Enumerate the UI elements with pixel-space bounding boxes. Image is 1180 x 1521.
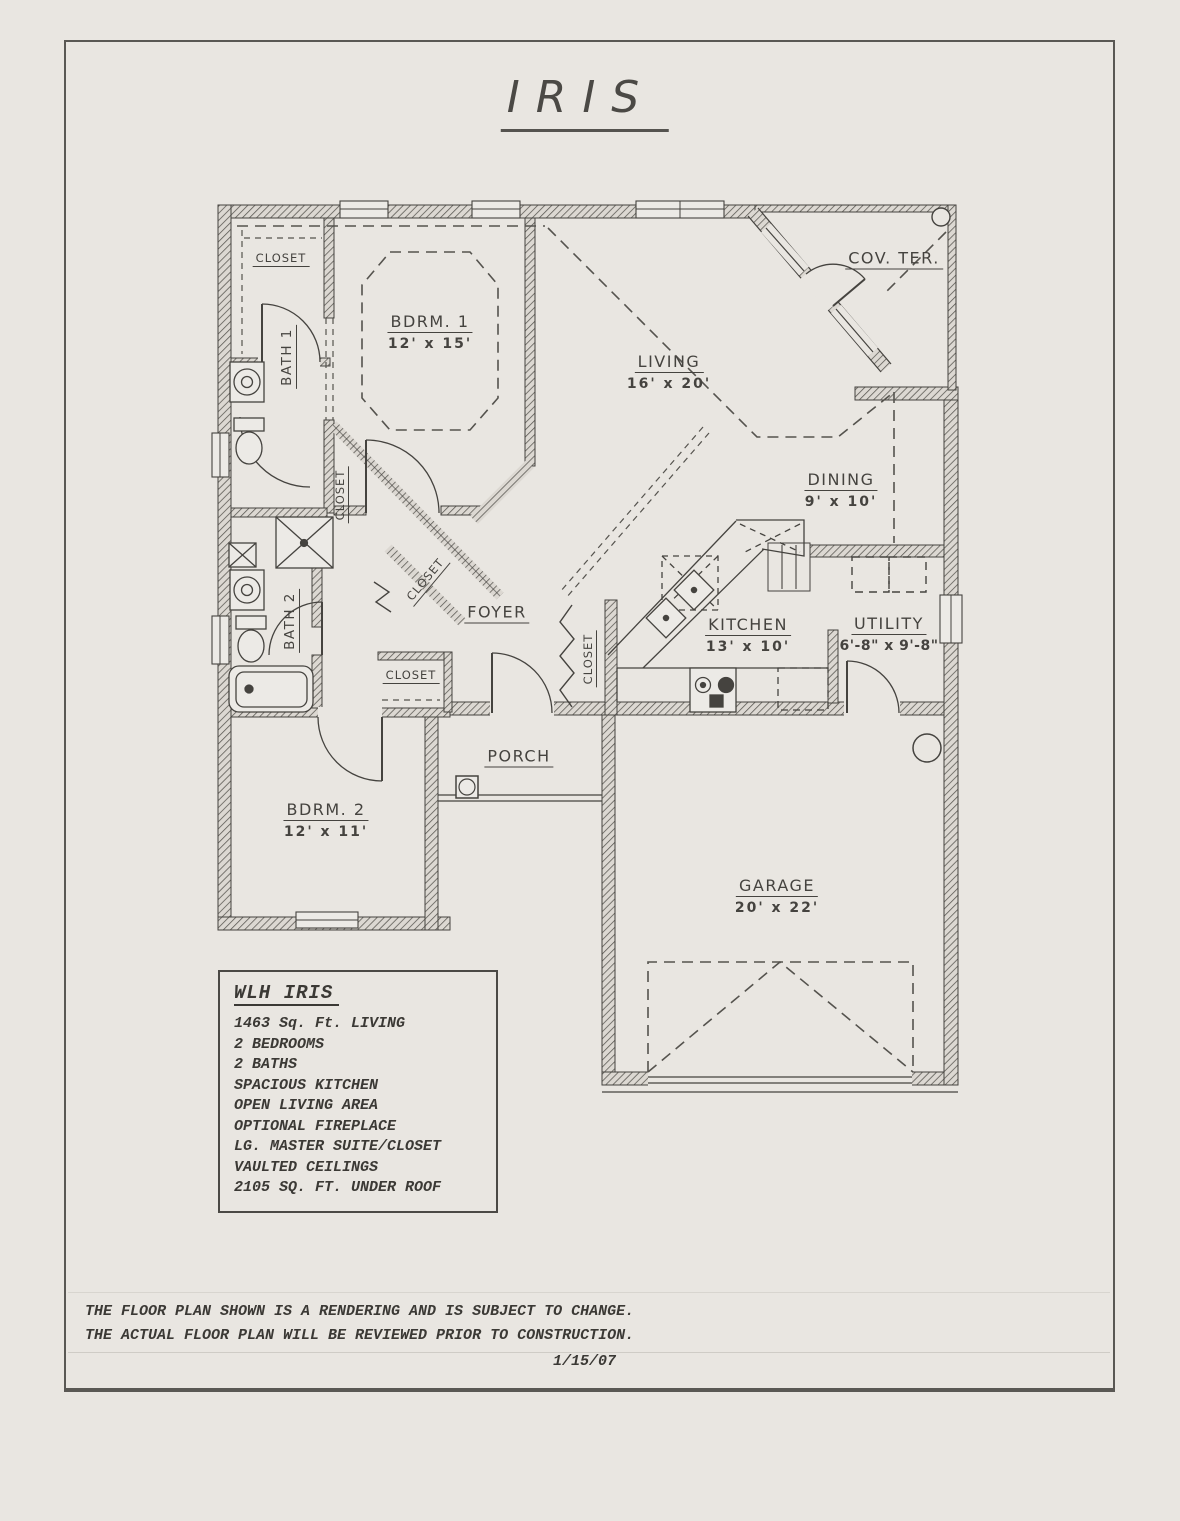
- bath1-toilet-tank: [234, 418, 264, 431]
- room-label-bdrm1: BDRM. 1 12' x 15': [387, 312, 472, 352]
- bifold-doors: [374, 582, 574, 707]
- info-box-line: OPEN LIVING AREA: [234, 1096, 484, 1117]
- room-label-bath2: BATH 2: [282, 589, 300, 653]
- info-box-line: SPACIOUS KITCHEN: [234, 1076, 484, 1097]
- room-label-closet-master: CLOSET: [253, 251, 310, 267]
- info-box-line: OPTIONAL FIREPLACE: [234, 1117, 484, 1138]
- room-label-porch: PORCH: [484, 747, 553, 768]
- floor-plan-sheet: IRIS: [0, 0, 1180, 1521]
- info-box-line: LG. MASTER SUITE/CLOSET: [234, 1137, 484, 1158]
- bath2-toilet-tank: [236, 616, 266, 629]
- diagonal-wall: [748, 208, 891, 372]
- info-box-line: 1463 Sq. Ft. LIVING: [234, 1014, 484, 1035]
- room-label-closet-hall: CLOSET: [333, 467, 349, 524]
- washer: [852, 557, 889, 592]
- range-icon: [690, 668, 736, 712]
- bath1-toilet-icon: [236, 432, 262, 464]
- room-label-closet-coat: CLOSET: [581, 631, 597, 688]
- room-label-garage: GARAGE 20' x 22': [735, 876, 819, 916]
- floor-plan-drawing: [0, 0, 1180, 1521]
- dashed-detail-lines: [242, 230, 709, 700]
- room-label-cov-ter: COV. TER.: [845, 249, 943, 270]
- info-box-line: 2 BATHS: [234, 1055, 484, 1076]
- room-label-kitchen: KITCHEN 13' x 10': [705, 615, 791, 655]
- dryer: [889, 557, 926, 592]
- water-heater-icon: [913, 734, 941, 762]
- bath1-fixtures: [229, 362, 333, 568]
- plan-date: 1/15/07: [553, 1353, 616, 1370]
- info-box: WLH IRIS 1463 Sq. Ft. LIVING 2 BEDROOMS …: [218, 970, 498, 1213]
- info-box-title: WLH IRIS: [234, 982, 339, 1006]
- disclaimer-line1: THE FLOOR PLAN SHOWN IS A RENDERING AND …: [85, 1300, 634, 1324]
- porch-elements: [438, 776, 602, 801]
- laundry-fixtures: [852, 557, 926, 592]
- disclaimer-line2: THE ACTUAL FLOOR PLAN WILL BE REVIEWED P…: [85, 1324, 634, 1348]
- diagonal-interior-walls: [333, 425, 530, 622]
- info-box-line: 2 BEDROOMS: [234, 1035, 484, 1056]
- room-label-foyer: FOYER: [464, 603, 529, 624]
- room-label-utility: UTILITY 6'-8" x 9'-8": [839, 614, 938, 654]
- room-label-bdrm2: BDRM. 2 12' x 11': [283, 800, 368, 840]
- bath2-toilet-icon: [238, 630, 264, 662]
- room-label-closet-bdrm2: CLOSET: [383, 668, 440, 684]
- room-label-bath1: BATH 1: [279, 325, 297, 389]
- info-box-line: VAULTED CEILINGS: [234, 1158, 484, 1179]
- room-label-living: LIVING 16' x 20': [627, 352, 711, 392]
- room-label-dining: DINING 9' x 10': [804, 470, 877, 510]
- disclaimer: THE FLOOR PLAN SHOWN IS A RENDERING AND …: [85, 1300, 634, 1348]
- info-box-line: 2105 SQ. FT. UNDER ROOF: [234, 1178, 484, 1199]
- terrace-column: [932, 208, 950, 226]
